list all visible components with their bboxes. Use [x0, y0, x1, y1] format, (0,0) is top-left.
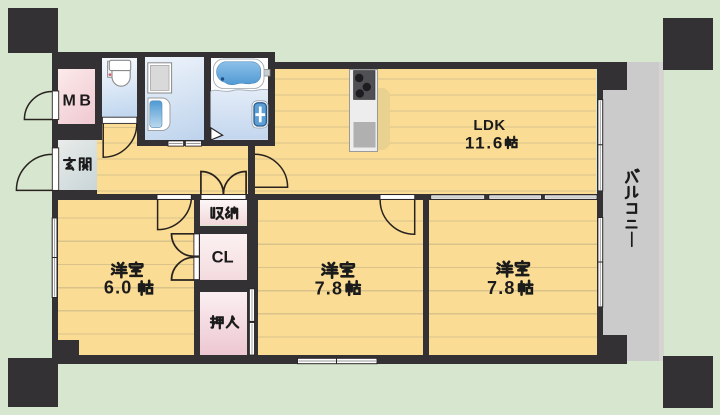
svg-text:LDK: LDK: [473, 117, 505, 134]
svg-text:7.8: 7.8: [315, 278, 344, 298]
svg-text:11.6: 11.6: [465, 133, 504, 152]
svg-text:MB: MB: [63, 93, 95, 110]
svg-text:6.0: 6.0: [104, 278, 133, 298]
svg-text:CL: CL: [212, 248, 234, 266]
svg-text:7.8: 7.8: [487, 278, 516, 298]
